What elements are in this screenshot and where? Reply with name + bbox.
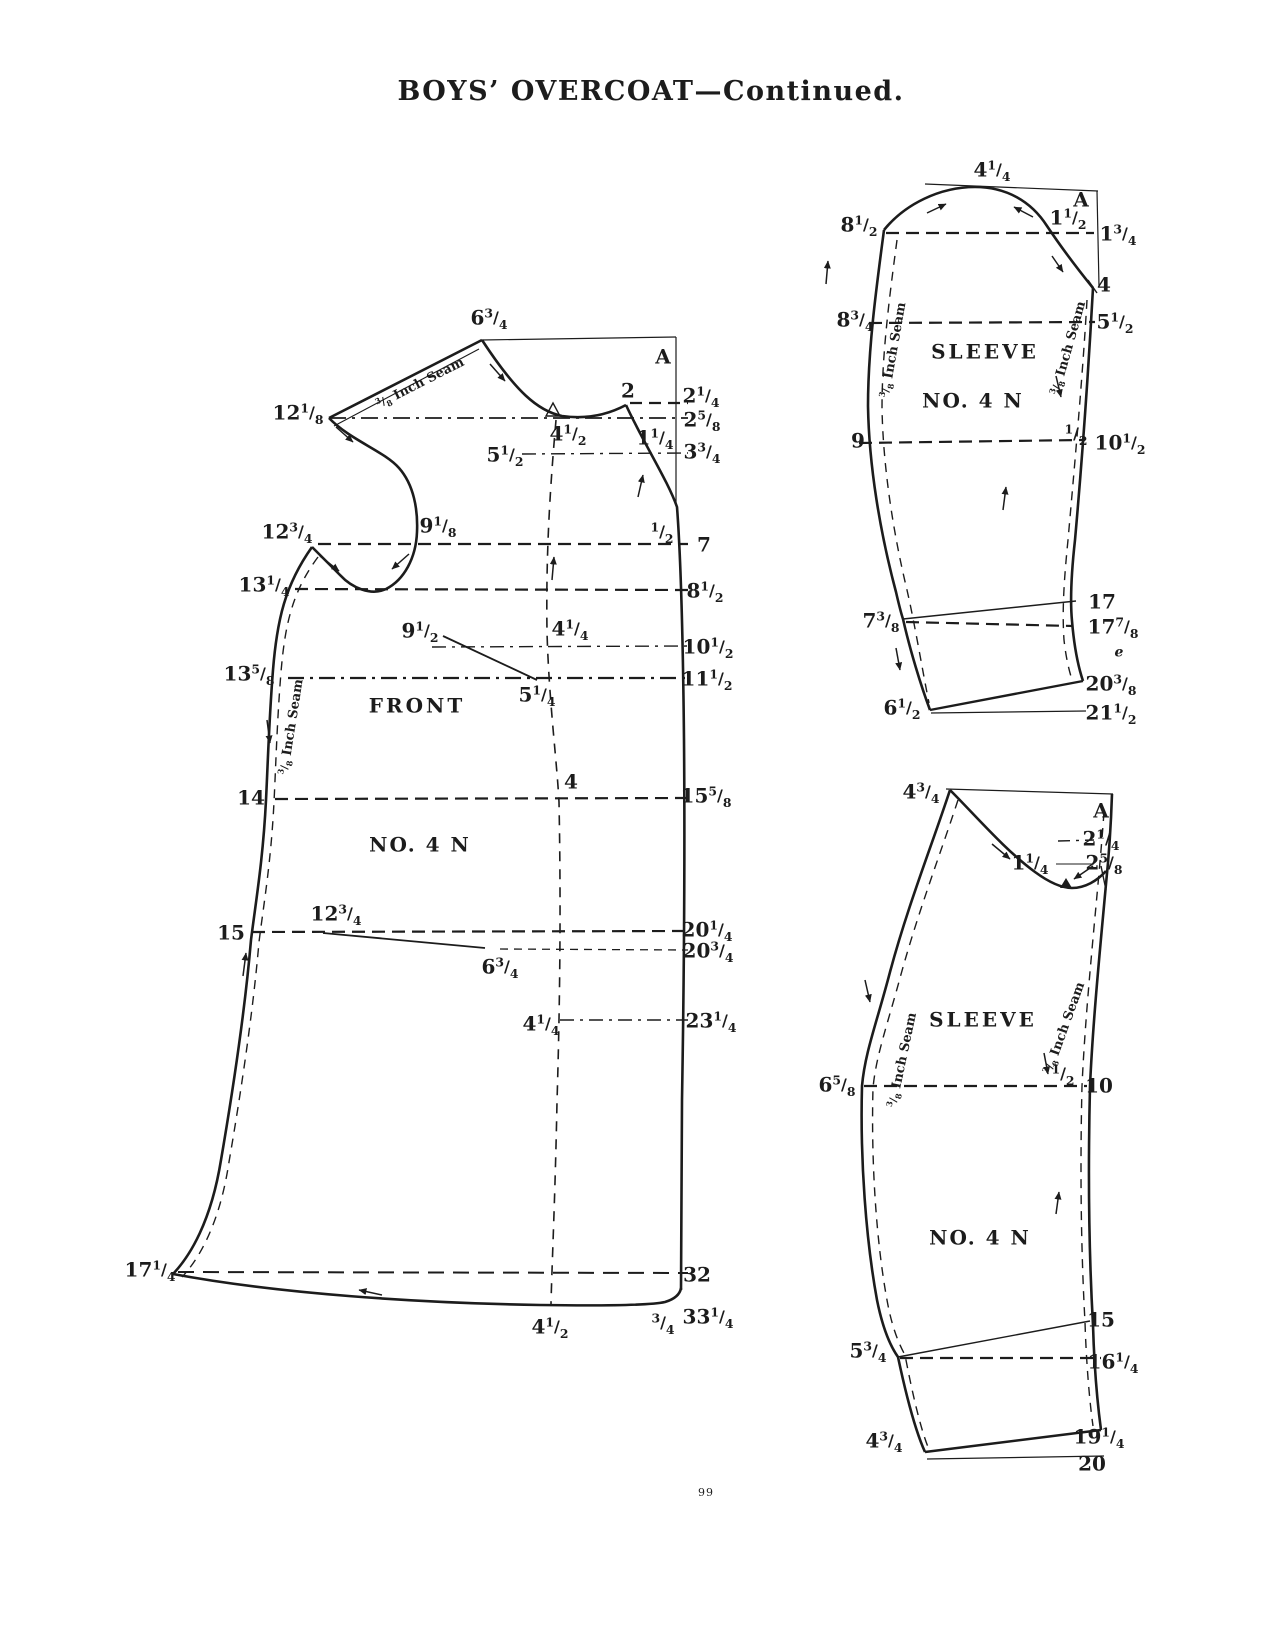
measurement-label: 81/2	[840, 212, 877, 238]
measurement-label: 41/4	[522, 1011, 559, 1037]
front-pointer-12-3-4	[323, 933, 485, 948]
seam-allowance-note: 3/8 Inch Seam	[884, 1011, 921, 1110]
seam-allowance-note: 3/8 Inch Seam	[275, 678, 307, 777]
front-neck-arrow	[490, 364, 505, 381]
front-armhole-arrow-left	[320, 556, 339, 571]
measurement-label: 20	[1078, 1451, 1106, 1475]
sleeve-under-notch-tick	[1101, 866, 1106, 890]
measurement-label: 111/2	[682, 666, 733, 692]
measurement-label: 101/2	[1095, 430, 1146, 456]
measurement-label: 1/2	[650, 520, 673, 546]
measurement-label: 7	[697, 532, 711, 556]
front-edge-right-arrow-up	[638, 475, 643, 497]
pattern-number-label: NO. 4 N	[369, 832, 471, 856]
front-center-line-dashed	[547, 420, 560, 1304]
under-sleeve-piece	[862, 789, 1113, 1459]
measurement-label: 231/4	[686, 1008, 737, 1034]
measurement-label: 51/4	[518, 682, 555, 708]
measurement-label: 73/8	[862, 608, 899, 634]
sleeve-under-edge-right	[1089, 794, 1112, 1430]
corner-letter: A	[654, 344, 671, 368]
front-center-arrow-up	[552, 557, 554, 580]
upper-sleeve-piece	[826, 184, 1099, 713]
measurement-label: 123/4	[311, 901, 362, 927]
pattern-diagram: 63/4A221/425/841/211/451/233/4121/891/81…	[0, 0, 1275, 1650]
sleeve-top-cuff-guide	[931, 711, 1086, 713]
measurement-label: 11/4	[1011, 850, 1048, 876]
sleeve-under-cap-notch	[1060, 878, 1072, 888]
measurement-label: 51/2	[486, 442, 523, 468]
measurement-label: 13/4	[1099, 221, 1136, 247]
front-line-20-3-4	[500, 949, 688, 950]
measurement-label: 331/4	[683, 1304, 734, 1330]
pattern-number-label: NO. 4 N	[922, 388, 1024, 412]
measurement-label: 1/2	[1051, 1062, 1074, 1088]
measurement-label: 61/2	[883, 695, 920, 721]
measurement-label: 135/8	[224, 661, 275, 687]
piece-name-label: FRONT	[369, 693, 465, 717]
measurement-label: 17	[1088, 589, 1116, 613]
measurement-label: 4	[1097, 272, 1111, 296]
front-hem-arrow	[359, 1290, 382, 1295]
measurement-label: 14	[237, 785, 265, 809]
measurement-label: 41/2	[549, 421, 586, 447]
sleeve-under-left-arrow-down	[865, 980, 870, 1002]
measurement-label: 131/4	[239, 572, 290, 598]
measurement-label: 155/8	[681, 783, 732, 809]
sleeve-top-cap-curve	[884, 187, 1093, 288]
measurement-label: 15	[217, 920, 245, 944]
pattern-number-label: NO. 4 N	[929, 1225, 1031, 1249]
front-armhole-arrow-right	[392, 554, 409, 569]
front-armhole-curve	[312, 418, 417, 592]
sleeve-under-top-guide	[946, 789, 1113, 794]
measurement-label: 177/8	[1088, 614, 1139, 640]
sleeve-top-right-arrow-down	[1052, 256, 1063, 272]
measurement-label: 191/4	[1074, 1424, 1125, 1450]
front-line-8-1-2	[295, 589, 688, 590]
measurement-label: 203/8	[1086, 671, 1137, 697]
front-shoulder-seam	[329, 340, 482, 418]
sleeve-top-line-9	[859, 440, 1082, 443]
sleeve-top-cap-arrow-left	[927, 204, 946, 213]
measurement-label: 123/4	[262, 519, 313, 545]
measurement-label: 63/4	[470, 305, 507, 331]
front-line-32	[178, 1272, 688, 1273]
sleeve-top-inner-arrow-up	[1003, 487, 1006, 510]
measurement-label: 15	[1087, 1307, 1115, 1331]
sleeve-top-cuff	[930, 681, 1083, 710]
measurement-label: 81/2	[686, 578, 723, 604]
measurement-label: 91/8	[419, 513, 456, 539]
seam-allowance-note: 3/8 Inch Seam	[373, 354, 467, 413]
front-edge-left	[173, 547, 312, 1274]
front-edge-right	[626, 405, 684, 1290]
measurement-label: 41/2	[531, 1314, 568, 1340]
measurement-label: 43/4	[865, 1428, 902, 1454]
measurement-label: 3/4	[651, 1311, 674, 1337]
measurement-label: 83/4	[836, 307, 873, 333]
measurement-label: 121/8	[273, 400, 324, 426]
measurement-label: 91/2	[401, 618, 438, 644]
sleeve-top-elbow-line	[903, 601, 1076, 619]
measurement-label: 41/4	[973, 157, 1010, 183]
sleeve-under-inner-arrow-up	[1056, 1192, 1059, 1214]
seam-allowance-note: 3/8 Inch Seam	[876, 301, 910, 400]
sleeve-under-cap-arrow-left	[992, 844, 1010, 859]
front-top-guide-line	[482, 337, 676, 340]
measurement-label: 2	[621, 378, 635, 402]
sleeve-top-left-arrow-down	[896, 648, 900, 670]
seam-allowance-note: 3/8 Inch Seam	[1040, 979, 1089, 1076]
front-line-15	[252, 931, 688, 932]
measurement-label: 51/2	[1096, 309, 1133, 335]
measurement-label: 25/8	[683, 407, 720, 433]
sleeve-top-line-17-7-8	[906, 622, 1073, 626]
measurement-label: 211/2	[1086, 700, 1137, 726]
page-number: 99	[698, 1486, 714, 1499]
front-pointer-9-1-2	[443, 636, 537, 680]
measurement-label: 53/4	[849, 1338, 886, 1364]
measurement-label: 33/4	[683, 439, 720, 465]
measurement-label: 101/2	[683, 634, 734, 660]
measurement-label: 21/4	[682, 383, 719, 409]
sleeve-top-cap-arrow-right	[1014, 207, 1033, 217]
front-piece	[173, 337, 688, 1305]
front-line-10-1-2	[432, 646, 688, 647]
piece-name-label: SLEEVE	[929, 1007, 1037, 1031]
diagram-labels: 63/4A221/425/841/211/451/233/4121/891/81…	[125, 157, 1146, 1475]
sleeve-top-left-outer-arrow-up	[826, 261, 828, 284]
corner-letter: A	[1092, 798, 1109, 822]
front-line-5-1-2	[522, 453, 688, 454]
measurement-label: 171/4	[125, 1257, 176, 1283]
measurement-label: 11/4	[636, 425, 673, 451]
measurement-label: 63/4	[481, 954, 518, 980]
measurement-label: 43/4	[902, 779, 939, 805]
measurement-label: 4	[564, 769, 578, 793]
front-line-14	[275, 798, 688, 799]
stray-mark: e	[1115, 644, 1124, 660]
measurement-label: 9	[851, 428, 865, 452]
measurement-label: 32	[683, 1262, 711, 1286]
piece-name-label: SLEEVE	[931, 339, 1039, 363]
measurement-label: 161/4	[1088, 1349, 1139, 1375]
measurement-label: 10	[1085, 1073, 1113, 1097]
front-hem-curve	[173, 1274, 681, 1305]
measurement-label: 41/4	[551, 616, 588, 642]
measurement-label: 65/8	[818, 1072, 855, 1098]
front-left-arrow-up	[243, 953, 246, 976]
scanned-page: BOYS’ OVERCOAT—Continued. 63/4A221/425/8…	[0, 0, 1275, 1650]
sleeve-under-elbow-line	[898, 1321, 1090, 1357]
